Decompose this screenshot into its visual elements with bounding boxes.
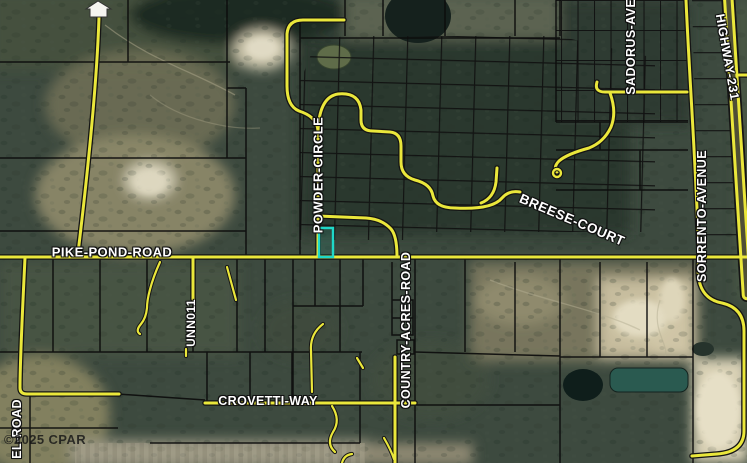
map-canvas[interactable]: PIKE-POND-ROAD CROVETTI-WAY POWDER-CIRCL… [0, 0, 747, 463]
subject-parcel-highlight [319, 228, 333, 257]
aerial-map-svg [0, 0, 747, 463]
plowed-field [75, 443, 365, 463]
pond-teal [610, 368, 688, 392]
pond-dark [563, 369, 603, 401]
ne-lot-grid [556, 0, 688, 122]
